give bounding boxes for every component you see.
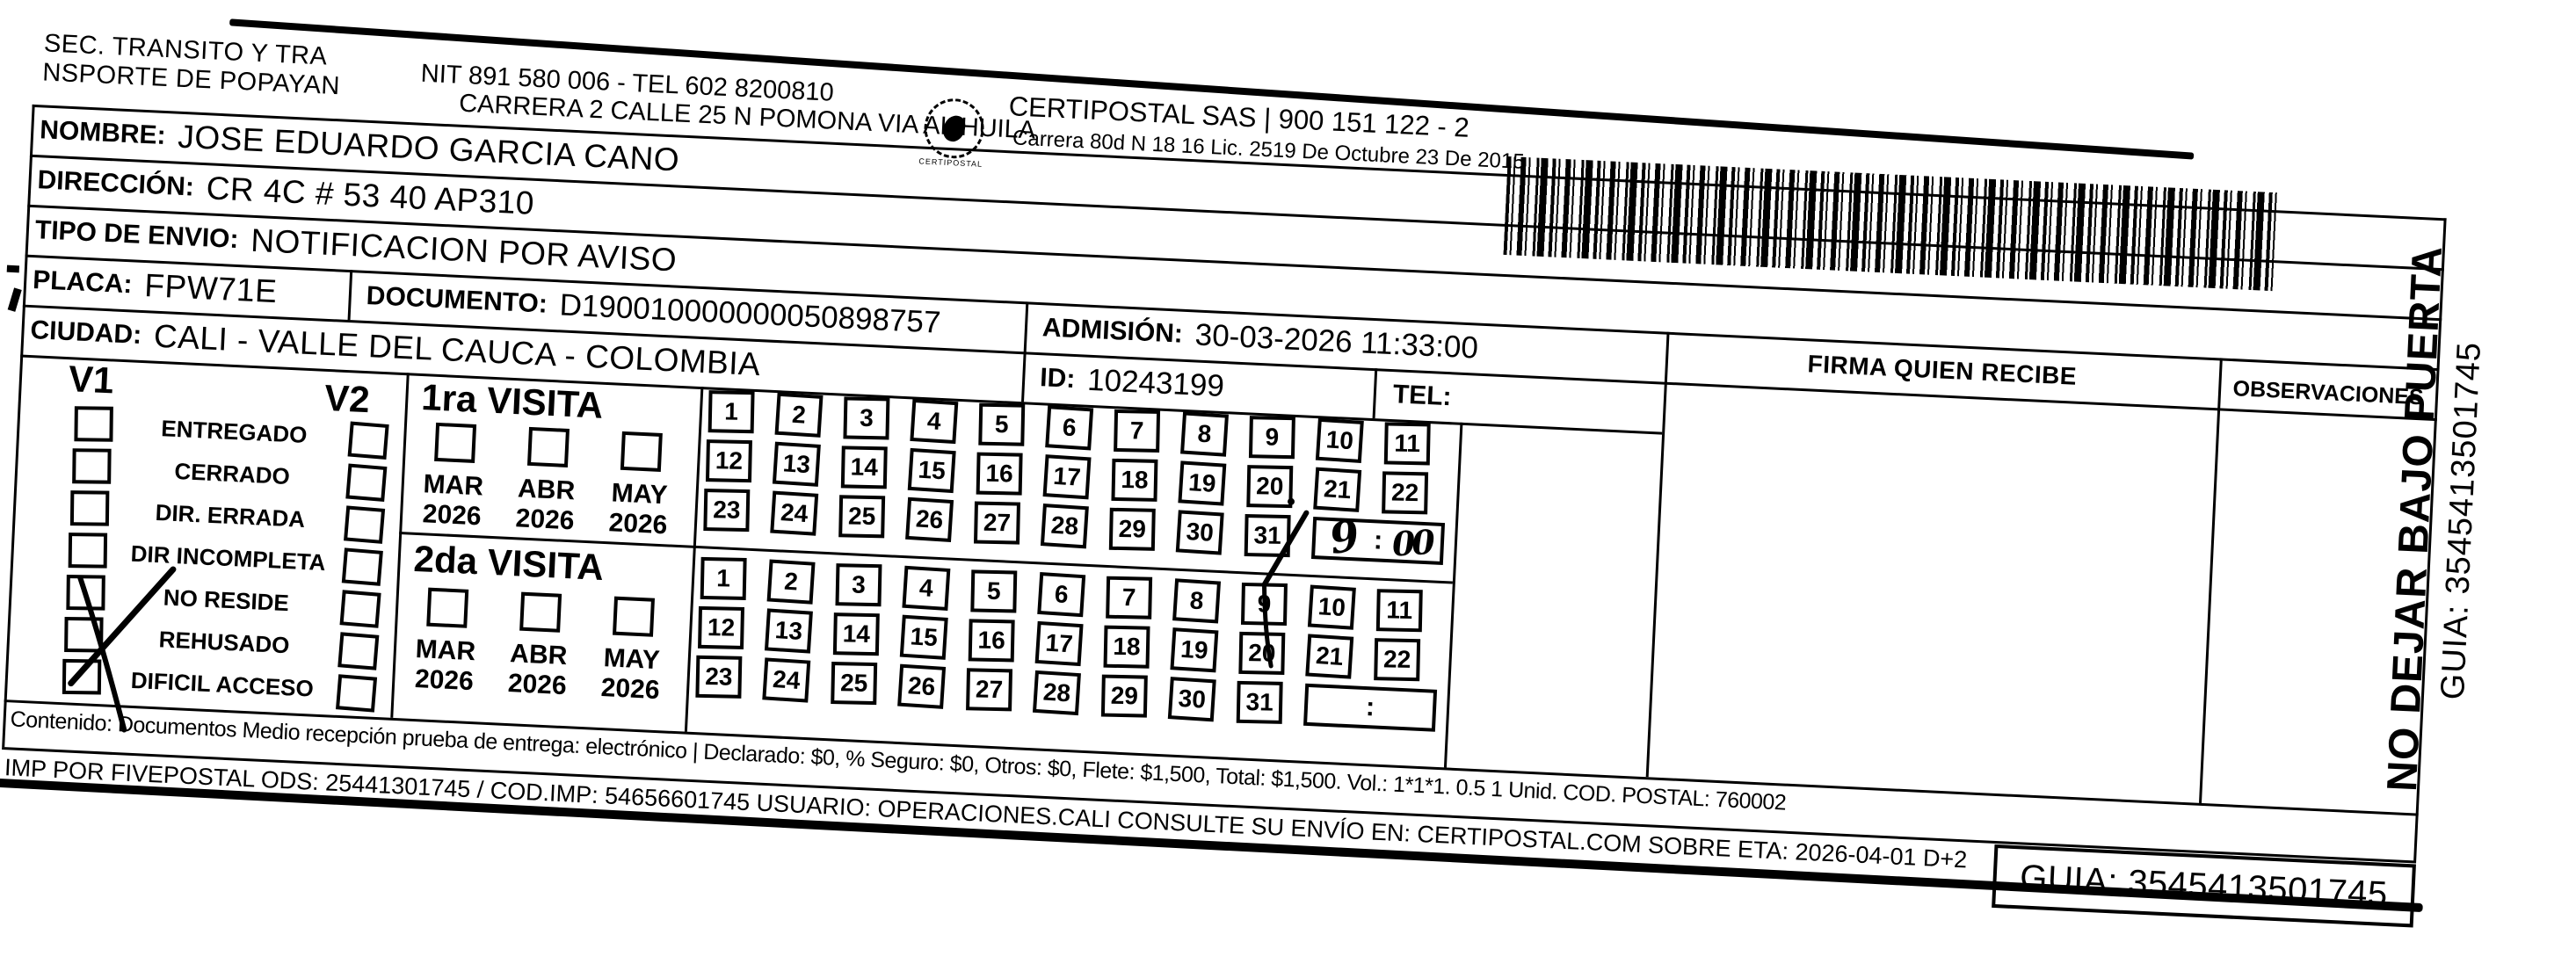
- first-visit-day-13: 13: [773, 442, 821, 487]
- month-label: MAR: [406, 634, 485, 668]
- status-label: CERRADO: [119, 455, 346, 493]
- second-visit-month-may: MAY2026: [591, 596, 673, 707]
- v2-checkbox-cerrado: [345, 463, 387, 501]
- field-id: ID: 10243199: [1030, 355, 1225, 409]
- first-visit-day-22: 22: [1382, 471, 1428, 514]
- second-visit-day-31: 31: [1237, 681, 1283, 724]
- first-visit-checkbox-may: [620, 431, 663, 472]
- first-visit-day-7: 7: [1114, 409, 1160, 453]
- second-visit-day-4: 4: [902, 566, 950, 611]
- second-visit-day-1: 1: [700, 557, 747, 600]
- first-visit-day-5: 5: [978, 403, 1025, 446]
- id-value: 10243199: [1086, 363, 1224, 404]
- v2-checkbox-entregado: [348, 422, 389, 460]
- second-visit-day-7: 7: [1106, 576, 1152, 620]
- placa-label: PLACA:: [32, 265, 133, 300]
- time-colon: :: [1365, 692, 1375, 722]
- month-label: MAY: [600, 478, 679, 511]
- first-visit-day-3: 3: [843, 396, 889, 439]
- second-visit-day-16: 16: [969, 619, 1015, 662]
- first-visit-month-may: MAY2026: [599, 431, 681, 541]
- first-visit-day-9: 9: [1249, 416, 1295, 459]
- year-label: 2026: [497, 669, 577, 702]
- second-visit-checkbox-may: [613, 597, 655, 637]
- v1-label: V1: [68, 358, 115, 402]
- first-visit-checkbox-mar: [434, 423, 476, 463]
- year-label: 2026: [591, 673, 670, 707]
- second-visit-day-3: 3: [835, 563, 882, 606]
- first-visit-day-29: 29: [1109, 508, 1156, 551]
- first-visit-day-14: 14: [841, 446, 888, 489]
- side-warning: NO DEJAR BAJO PUERTA GUIA: 3545413501745: [2377, 236, 2536, 804]
- v1-checkbox-entregado: [74, 406, 112, 442]
- second-visit-month-mar: MAR2026: [405, 587, 488, 698]
- v2-checkbox-dir-errada: [344, 505, 385, 543]
- ciudad-label: CIUDAD:: [30, 315, 142, 351]
- second-visit-month-abr: ABR2026: [497, 591, 580, 702]
- tel-label: TEL:: [1392, 380, 1452, 412]
- scan-noise: [7, 265, 19, 273]
- second-visit-day-22: 22: [1374, 638, 1420, 681]
- first-visit-day-12: 12: [706, 439, 752, 482]
- grid-line: [1373, 368, 1378, 418]
- second-visit-checkbox-mar: [426, 588, 468, 628]
- v2-checkbox-dir-incompleta: [342, 547, 383, 585]
- scanned-document: SEC. TRANSITO Y TRA NSPORTE DE POPAYAN N…: [0, 5, 2478, 968]
- v2-checkbox-rehusado: [337, 632, 379, 670]
- grid-line: [348, 270, 353, 320]
- status-label: DIR. ERRADA: [116, 497, 344, 535]
- month-label: MAR: [414, 469, 493, 503]
- tipo-envio-label: TIPO DE ENVIO:: [34, 215, 239, 255]
- first-visit-day-11: 11: [1384, 422, 1431, 465]
- year-label: 2026: [505, 504, 584, 537]
- guia-number-box: GUIA: 3545413501745: [1992, 844, 2416, 928]
- second-visit-day-24: 24: [762, 657, 810, 702]
- second-visit-checkbox-abr: [519, 592, 562, 633]
- second-visit-day-29: 29: [1101, 675, 1148, 718]
- seal-emblem-icon: [940, 113, 968, 144]
- admision-value: 30-03-2026 11:33:00: [1194, 317, 1479, 366]
- second-visit-day-25: 25: [831, 662, 877, 705]
- direccion-label: DIRECCIÓN:: [37, 165, 195, 202]
- month-label: MAY: [592, 643, 671, 677]
- second-visit-day-13: 13: [765, 608, 813, 653]
- first-visit-day-23: 23: [703, 489, 750, 532]
- first-visit-day-10: 10: [1316, 418, 1364, 463]
- first-visit-day-27: 27: [974, 502, 1020, 545]
- second-visit-day-28: 28: [1033, 670, 1081, 715]
- month-label: ABR: [499, 639, 578, 672]
- second-visit-day-14: 14: [833, 612, 880, 656]
- first-visit-checkbox-abr: [527, 427, 570, 467]
- first-visit-day-6: 6: [1045, 405, 1093, 450]
- second-visit-day-6: 6: [1037, 572, 1085, 617]
- nombre-label: NOMBRE:: [40, 115, 167, 151]
- first-visit-day-18: 18: [1111, 459, 1157, 502]
- first-visit-time-box: : 9 00: [1311, 517, 1445, 565]
- time-colon: :: [1373, 525, 1383, 555]
- scanned-postal-form: { "header": { "sender_line1": "SEC. TRAN…: [0, 0, 2576, 941]
- second-visit-day-15: 15: [900, 615, 948, 660]
- handwritten-minutes: 00: [1391, 522, 1433, 564]
- first-visit-day-2: 2: [775, 393, 824, 438]
- first-visit-day-8: 8: [1180, 411, 1229, 456]
- v2-label: V2: [323, 377, 371, 421]
- second-visit-day-19: 19: [1170, 627, 1218, 672]
- first-visit-day-16: 16: [976, 453, 1023, 496]
- handwritten-day-mark-31: [1234, 490, 1326, 674]
- second-visit-day-23: 23: [695, 656, 742, 699]
- v1-checkbox-dir-errada: [70, 490, 109, 526]
- first-visit-month-abr: ABR2026: [505, 426, 588, 537]
- second-visit-time-box: :: [1303, 684, 1437, 732]
- first-visit-day-26: 26: [905, 497, 954, 542]
- id-label: ID:: [1040, 363, 1077, 395]
- first-visit-day-17: 17: [1043, 454, 1092, 499]
- second-visit-day-12: 12: [698, 606, 744, 649]
- second-visit-day-27: 27: [966, 668, 1012, 711]
- first-visit-day-19: 19: [1178, 460, 1226, 505]
- second-visit-day-18: 18: [1104, 626, 1150, 669]
- v2-checkbox-dificil-acceso: [336, 674, 377, 712]
- handwritten-hour: 9: [1326, 511, 1363, 564]
- placa-value: FPW71E: [143, 267, 278, 310]
- documento-label: DOCUMENTO:: [366, 281, 548, 320]
- second-visit-day-17: 17: [1035, 621, 1084, 666]
- second-visit-title: 2da VISITA: [413, 538, 605, 589]
- second-visit-day-5: 5: [970, 569, 1017, 612]
- grid-line: [1444, 423, 1463, 768]
- first-visit-month-mar: MAR2026: [412, 422, 495, 533]
- barcode-icon: [1504, 156, 2279, 291]
- second-visit-day-30: 30: [1168, 677, 1216, 721]
- admision-label: ADMISIÓN:: [1041, 313, 1183, 349]
- year-label: 2026: [405, 664, 484, 698]
- status-label: ENTREGADO: [120, 413, 348, 451]
- v2-checkbox-no-reside: [340, 590, 381, 627]
- grid-line: [1646, 332, 1670, 778]
- first-visit-day-4: 4: [910, 399, 958, 444]
- year-label: 2026: [412, 499, 491, 533]
- first-visit-day-1: 1: [708, 390, 755, 433]
- field-tel: TEL:: [1383, 372, 1465, 421]
- v1-checkbox-cerrado: [72, 448, 111, 484]
- handwritten-check-no-reside: [20, 540, 205, 737]
- sender-name: SEC. TRANSITO Y TRA NSPORTE DE POPAYAN: [42, 29, 343, 101]
- month-label: ABR: [507, 474, 586, 507]
- grid-line: [2199, 358, 2223, 803]
- seal-caption: CERTIPOSTAL: [903, 156, 999, 170]
- second-visit-day-8: 8: [1172, 578, 1221, 623]
- second-visit-months: MAR2026ABR2026MAY2026: [405, 587, 684, 707]
- scan-noise: [8, 287, 22, 311]
- first-visit-title: 1ra VISITA: [420, 376, 604, 427]
- second-visit-day-11: 11: [1376, 589, 1423, 632]
- first-visit-day-24: 24: [770, 491, 818, 536]
- second-visit-day-2: 2: [767, 559, 816, 604]
- first-visit-day-28: 28: [1041, 504, 1089, 548]
- first-visit-day-25: 25: [838, 495, 885, 538]
- first-visit-day-15: 15: [908, 448, 956, 493]
- year-label: 2026: [599, 508, 678, 541]
- first-visit-months: MAR2026ABR2026MAY2026: [412, 422, 691, 542]
- first-visit-day-30: 30: [1176, 510, 1224, 554]
- second-visit-day-26: 26: [897, 664, 946, 709]
